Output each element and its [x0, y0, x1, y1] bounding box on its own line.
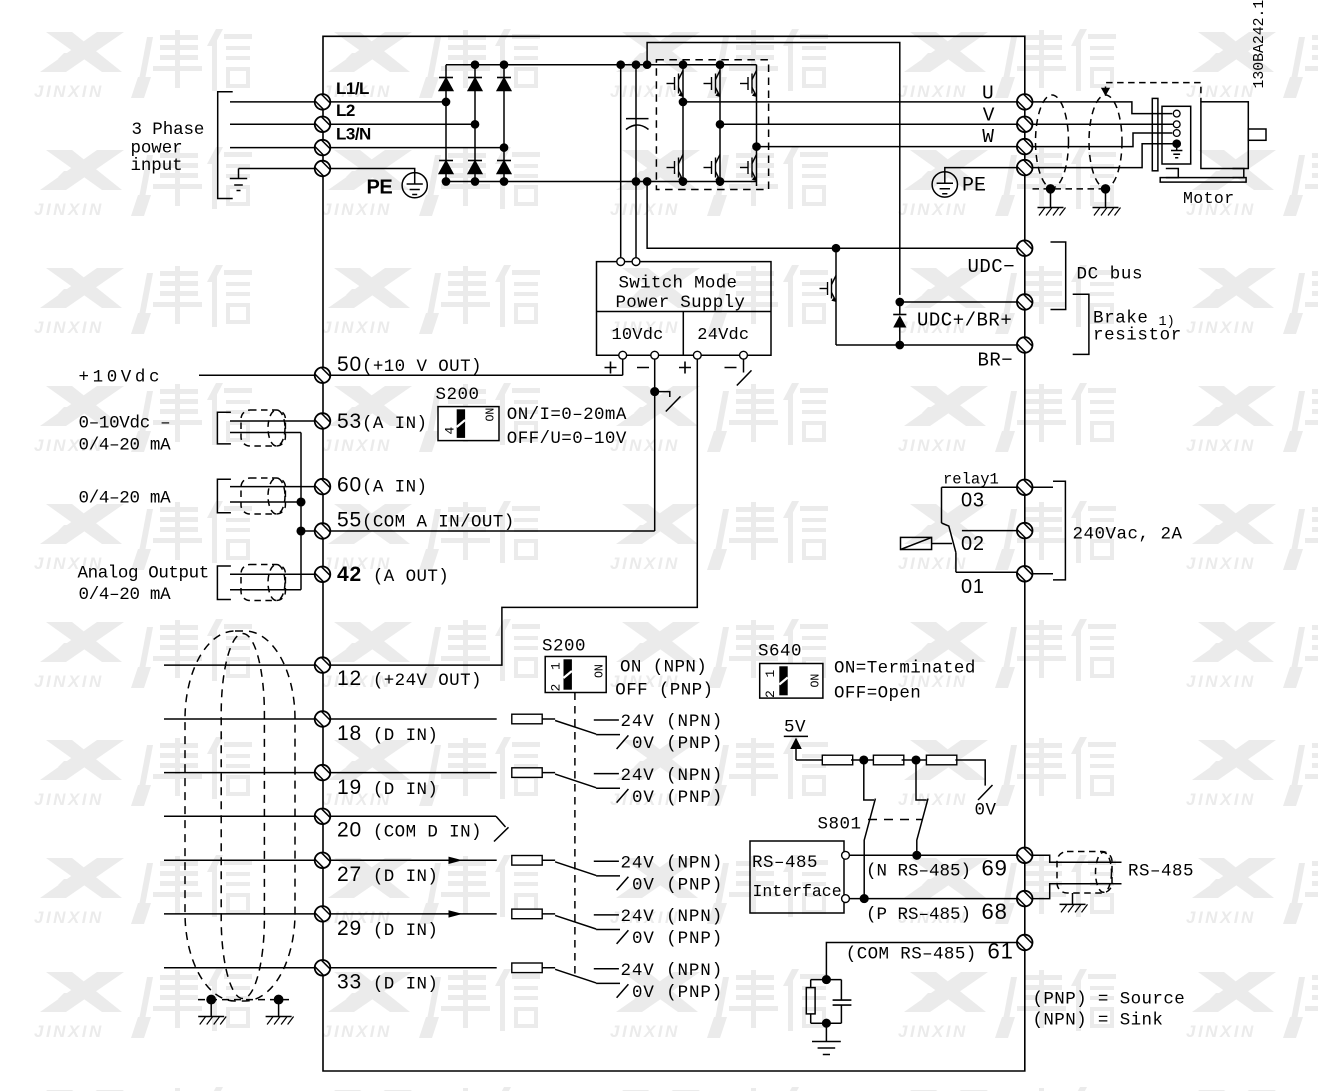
svg-text:ON/I=0–20mA: ON/I=0–20mA [507, 405, 627, 425]
svg-text:Power Supply: Power Supply [616, 293, 746, 313]
svg-text:02: 02 [961, 533, 985, 555]
svg-text:24Vdc: 24Vdc [697, 326, 749, 345]
svg-text:24V (NPN): 24V (NPN) [621, 854, 724, 874]
svg-text:ON (NPN): ON (NPN) [620, 657, 707, 677]
svg-text:Interface: Interface [753, 882, 842, 901]
svg-text:0–10Vdc –: 0–10Vdc – [79, 413, 171, 433]
svg-text:0V (PNP): 0V (PNP) [632, 734, 723, 754]
svg-text:5V: 5V [784, 717, 806, 737]
svg-text:20 (COM D IN): 20 (COM D IN) [337, 819, 482, 843]
svg-text:S200: S200 [436, 385, 480, 405]
svg-text:0/4–20 mA: 0/4–20 mA [79, 488, 172, 508]
svg-text:Switch Mode: Switch Mode [619, 273, 738, 293]
svg-text:01: 01 [961, 576, 985, 598]
svg-text:relay1: relay1 [943, 470, 999, 488]
svg-text:24V (NPN): 24V (NPN) [621, 766, 724, 786]
svg-text:DC bus: DC bus [1077, 264, 1144, 284]
svg-text:50(+10 V OUT): 50(+10 V OUT) [337, 353, 482, 377]
svg-text:0/4–20 mA: 0/4–20 mA [79, 435, 172, 455]
svg-text:input: input [131, 156, 183, 176]
svg-text:PE: PE [367, 176, 393, 198]
svg-text:0/4–20 mA: 0/4–20 mA [79, 585, 172, 605]
svg-text:60(A IN): 60(A IN) [337, 474, 427, 498]
svg-text:0V: 0V [975, 800, 997, 820]
svg-text:03: 03 [961, 490, 985, 512]
svg-text:33 (D IN): 33 (D IN) [337, 971, 438, 995]
svg-text:ON: ON [594, 664, 607, 678]
svg-text:V: V [983, 104, 995, 126]
svg-text:240Vac, 2A: 240Vac, 2A [1073, 524, 1183, 544]
svg-text:24V (NPN): 24V (NPN) [621, 712, 724, 732]
svg-text:S640: S640 [758, 641, 802, 661]
svg-text:24V (NPN): 24V (NPN) [621, 907, 724, 927]
svg-text:27 (D IN): 27 (D IN) [337, 863, 438, 887]
svg-text:29 (D IN): 29 (D IN) [337, 917, 438, 941]
svg-text:0V (PNP): 0V (PNP) [632, 983, 723, 1003]
svg-text:U: U [982, 83, 994, 105]
svg-text:10Vdc: 10Vdc [612, 326, 664, 345]
svg-text:L2: L2 [336, 101, 355, 120]
svg-text:BR−: BR− [978, 349, 1014, 371]
svg-text:OFF/U=0–10V: OFF/U=0–10V [507, 429, 627, 449]
svg-text:0V (PNP): 0V (PNP) [632, 929, 723, 949]
svg-text:L3/N: L3/N [336, 125, 371, 144]
svg-text:42 (A OUT): 42 (A OUT) [337, 563, 449, 587]
svg-text:130BA242.1: 130BA242.1 [1252, 0, 1268, 89]
svg-text:ON: ON [810, 674, 823, 688]
svg-text:3 Phase: 3 Phase [132, 120, 205, 140]
svg-text:12 (+24V OUT): 12 (+24V OUT) [337, 667, 482, 691]
svg-text:24V (NPN): 24V (NPN) [621, 961, 724, 981]
svg-text:(PNP) = Source: (PNP) = Source [1033, 989, 1186, 1009]
svg-text:OFF=Open: OFF=Open [834, 683, 921, 703]
svg-text:+10Vdc: +10Vdc [79, 367, 164, 387]
svg-text:19 (D IN): 19 (D IN) [337, 776, 438, 800]
svg-text:0V (PNP): 0V (PNP) [632, 788, 723, 808]
svg-text:UDC−: UDC− [968, 256, 1016, 278]
svg-text:53(A IN): 53(A IN) [337, 410, 427, 434]
svg-text:4: 4 [443, 427, 458, 435]
svg-text:2: 2 [549, 684, 564, 692]
svg-text:L1/L: L1/L [336, 79, 369, 98]
svg-text:2: 2 [763, 690, 778, 698]
svg-text:OFF (PNP): OFF (PNP) [615, 680, 713, 700]
svg-text:0V (PNP): 0V (PNP) [632, 876, 723, 896]
svg-text:ON: ON [485, 408, 498, 422]
svg-text:RS–485: RS–485 [752, 853, 818, 873]
svg-text:W: W [982, 126, 994, 148]
svg-text:Motor: Motor [1183, 189, 1235, 208]
svg-text:S801: S801 [818, 814, 862, 834]
svg-text:55(COM A IN/OUT): 55(COM A IN/OUT) [337, 509, 515, 533]
svg-text:ON=Terminated: ON=Terminated [834, 658, 976, 678]
svg-text:Analog Output: Analog Output [78, 563, 209, 583]
svg-text:UDC+/BR+: UDC+/BR+ [917, 309, 1012, 331]
svg-text:PE: PE [962, 174, 986, 197]
svg-text:(NPN) = Sink: (NPN) = Sink [1033, 1010, 1164, 1030]
svg-text:resistor: resistor [1093, 325, 1182, 345]
svg-text:1: 1 [763, 670, 778, 678]
svg-text:18 (D IN): 18 (D IN) [337, 722, 438, 746]
svg-text:RS–485: RS–485 [1128, 862, 1194, 882]
svg-text:1: 1 [549, 662, 564, 670]
svg-text:S200: S200 [542, 636, 586, 656]
